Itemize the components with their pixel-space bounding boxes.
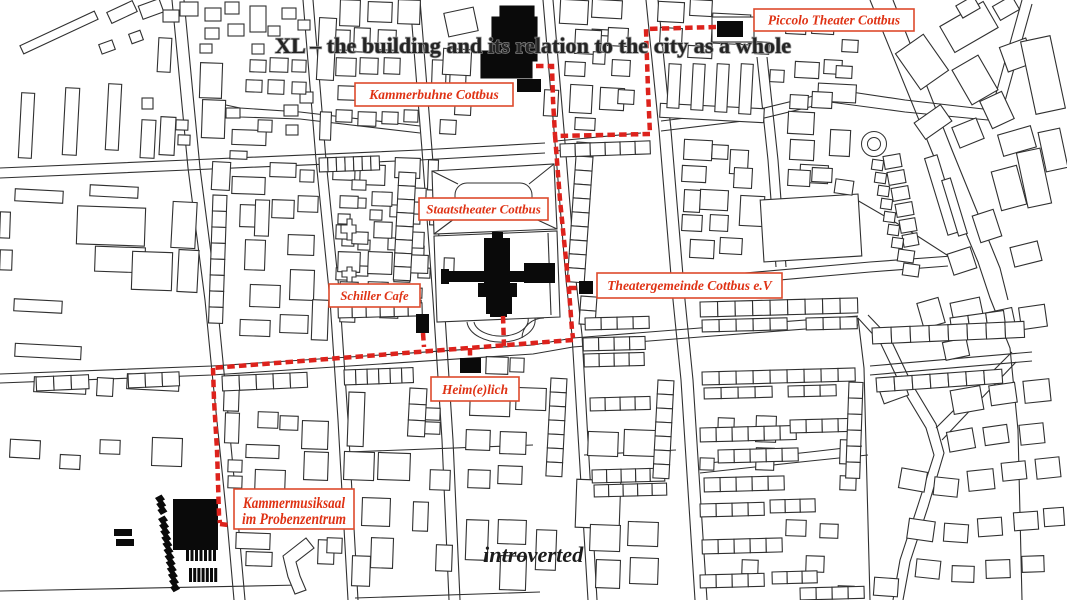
svg-text:Kammerbuhne Cottbus: Kammerbuhne Cottbus (368, 87, 498, 102)
svg-text:introverted: introverted (483, 542, 584, 567)
svg-text:Schiller Cafe: Schiller Cafe (340, 289, 409, 303)
svg-text:Piccolo Theater Cottbus: Piccolo Theater Cottbus (768, 13, 900, 28)
svg-text:Staatstheater Cottbus: Staatstheater Cottbus (426, 202, 541, 217)
svg-text:Kammermusiksaal: Kammermusiksaal (242, 495, 345, 512)
svg-text:im Probenzentrum: im Probenzentrum (242, 511, 346, 528)
svg-text:XL – the building and its rela: XL – the building and its relation to th… (275, 33, 791, 58)
svg-text:Theatergemeinde Cottbus e.V: Theatergemeinde Cottbus e.V (607, 278, 773, 293)
svg-text:Heim(e)lich: Heim(e)lich (441, 383, 508, 398)
